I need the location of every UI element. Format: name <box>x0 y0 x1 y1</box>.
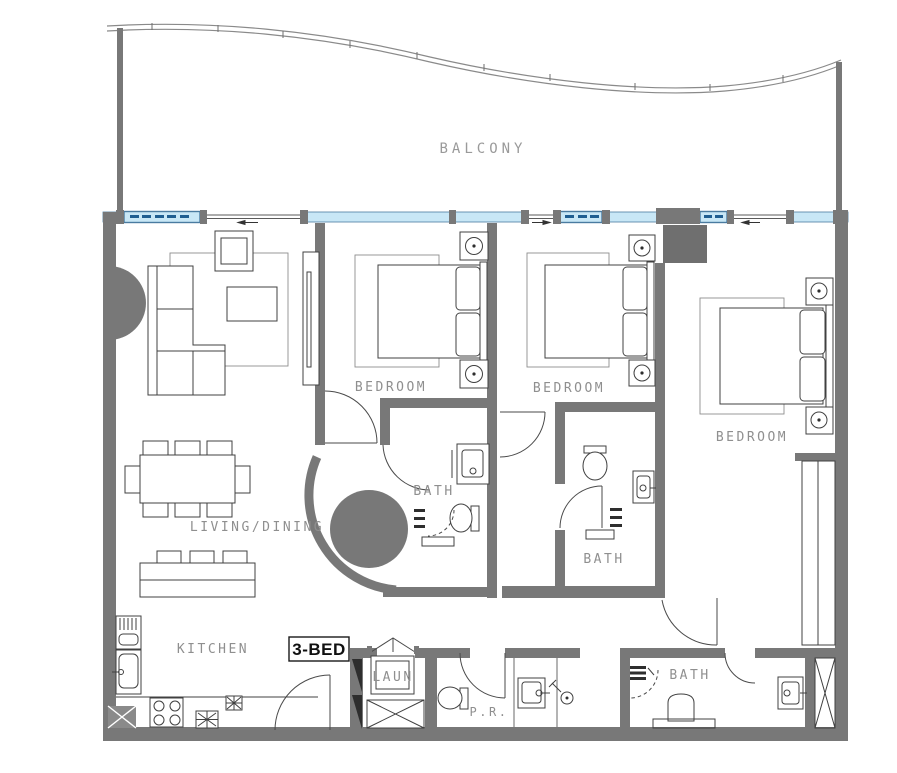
bath-3: BATH <box>630 658 835 728</box>
wall-bedroom1-bedroom2-divider <box>487 223 497 598</box>
kitchen: KITCHEN <box>108 551 318 728</box>
dining-area <box>125 441 250 517</box>
wall-bath2-top <box>555 402 665 412</box>
wall-bottom-exterior <box>103 727 848 741</box>
bath-2: BATH <box>583 446 656 567</box>
bedroom1-nightstand-bottom <box>460 360 488 388</box>
bath-1: BATH <box>413 444 489 546</box>
bedroom1-door <box>325 391 377 443</box>
balcony: BALCONY <box>107 23 842 213</box>
bedroom2-pillow-1 <box>623 267 647 310</box>
bath2-toilet-icon <box>583 446 607 480</box>
bedroom3-pillow-1 <box>800 310 825 354</box>
bedroom2-headboard <box>647 262 654 362</box>
bedroom3-nightstand-top <box>806 278 833 305</box>
floor-plan-page: BALCONY <box>0 0 897 773</box>
wall-bath2-left-lower <box>555 530 565 588</box>
balcony-label: BALCONY <box>439 141 526 157</box>
kitchen-door <box>275 675 330 730</box>
bedroom2-pillow-2 <box>623 313 647 356</box>
wall-laundry-top-right <box>415 648 470 658</box>
bath3-door <box>725 653 755 683</box>
bath3-sink-icon <box>778 677 807 709</box>
service-shaft-icon <box>815 658 835 728</box>
bath1-label: BATH <box>413 484 454 499</box>
shaft-column-block <box>663 225 707 263</box>
living-dining-label: LIVING/DINING <box>190 520 324 535</box>
bedroom3-pillow-2 <box>800 357 825 401</box>
bedroom1-pillow-2 <box>456 313 480 356</box>
wall-bath3-top-right <box>755 648 835 658</box>
bath2-shower-icon <box>586 508 622 539</box>
bedroom1-pillow-1 <box>456 267 480 310</box>
bath2-door <box>560 486 602 528</box>
balcony-rail-ticks <box>152 23 783 91</box>
balcony-rail-outer <box>107 24 841 88</box>
wall-bath1-bottom <box>383 587 497 597</box>
bath1-toilet-icon <box>450 504 479 532</box>
wall-laundry-right <box>425 648 437 727</box>
column-halfround <box>109 266 146 340</box>
window-gap-1 <box>207 211 300 224</box>
wall-bedroom1-bottom <box>380 398 497 408</box>
dining-table-icon <box>140 455 235 503</box>
bathtub-icon <box>653 694 715 728</box>
bath3-label: BATH <box>669 668 710 683</box>
wall-bath1-left-stub <box>380 398 390 445</box>
powder-room-label: P.R. <box>470 705 509 719</box>
balcony-post-left <box>117 28 123 213</box>
wall-right-exterior <box>835 212 848 741</box>
bedroom-3: BEDROOM <box>700 278 835 645</box>
bedroom-2: BEDROOM <box>527 235 655 396</box>
bedroom3-label: BEDROOM <box>716 430 788 445</box>
bath1-sink-icon <box>452 444 489 484</box>
sofa-icon <box>148 266 225 395</box>
bath3-shower-icon <box>630 666 658 698</box>
wall-bath3-top <box>620 648 725 658</box>
bedroom2-nightstand-bottom <box>629 360 655 386</box>
dishwasher-icon <box>196 711 218 728</box>
wall-pr-top <box>505 648 580 658</box>
unit-badge-label: 3-BED <box>292 640 346 659</box>
corner-cabinet <box>108 706 136 728</box>
bedroom3-closet <box>802 461 835 645</box>
bedroom3-headboard <box>826 303 833 408</box>
appliance-icon <box>226 696 242 710</box>
pr-sink-icon <box>518 678 550 708</box>
balcony-rail-inner <box>107 29 841 93</box>
laundry-label: LAUN <box>372 670 413 685</box>
wall-hall-mid <box>502 586 657 598</box>
bedroom3-door <box>662 598 717 645</box>
bedroom2-nightstand-top <box>629 235 655 261</box>
breakfast-stools <box>157 551 247 563</box>
window-gap-3 <box>734 211 786 224</box>
wall-bedroom2-bedroom3-divider <box>655 263 665 598</box>
bath2-sink-icon <box>633 471 656 503</box>
bedroom1-label: BEDROOM <box>355 380 427 395</box>
kitchen-label: KITCHEN <box>177 642 249 657</box>
column-round <box>330 490 408 568</box>
bedroom2-label: BEDROOM <box>533 381 605 396</box>
bath1-shower-icon <box>414 509 454 546</box>
unit-badge: 3-BED <box>289 637 349 661</box>
bedroom1-nightstand-top <box>460 232 488 260</box>
shower-column-icon <box>549 680 573 704</box>
bedroom2-door <box>500 412 545 457</box>
coffee-table-icon <box>227 287 277 321</box>
wall-closet-stub <box>795 453 835 461</box>
window-gap-2 <box>529 211 553 224</box>
wall-bath3-left <box>620 658 630 727</box>
bedroom1-headboard <box>480 262 487 362</box>
kitchen-sink-unit <box>112 616 141 694</box>
wall-bath2-left-upper <box>555 402 565 484</box>
bath2-label: BATH <box>583 552 624 567</box>
balcony-post-right <box>836 62 842 213</box>
pr-toilet-icon <box>438 687 468 709</box>
stove-icon <box>150 698 183 727</box>
laundry-closet-icon <box>367 700 424 728</box>
bedroom-1: BEDROOM <box>355 232 488 395</box>
floor-plan-canvas: BALCONY <box>0 0 897 773</box>
window-band <box>103 208 848 225</box>
bedroom3-nightstand-bottom <box>806 407 833 434</box>
